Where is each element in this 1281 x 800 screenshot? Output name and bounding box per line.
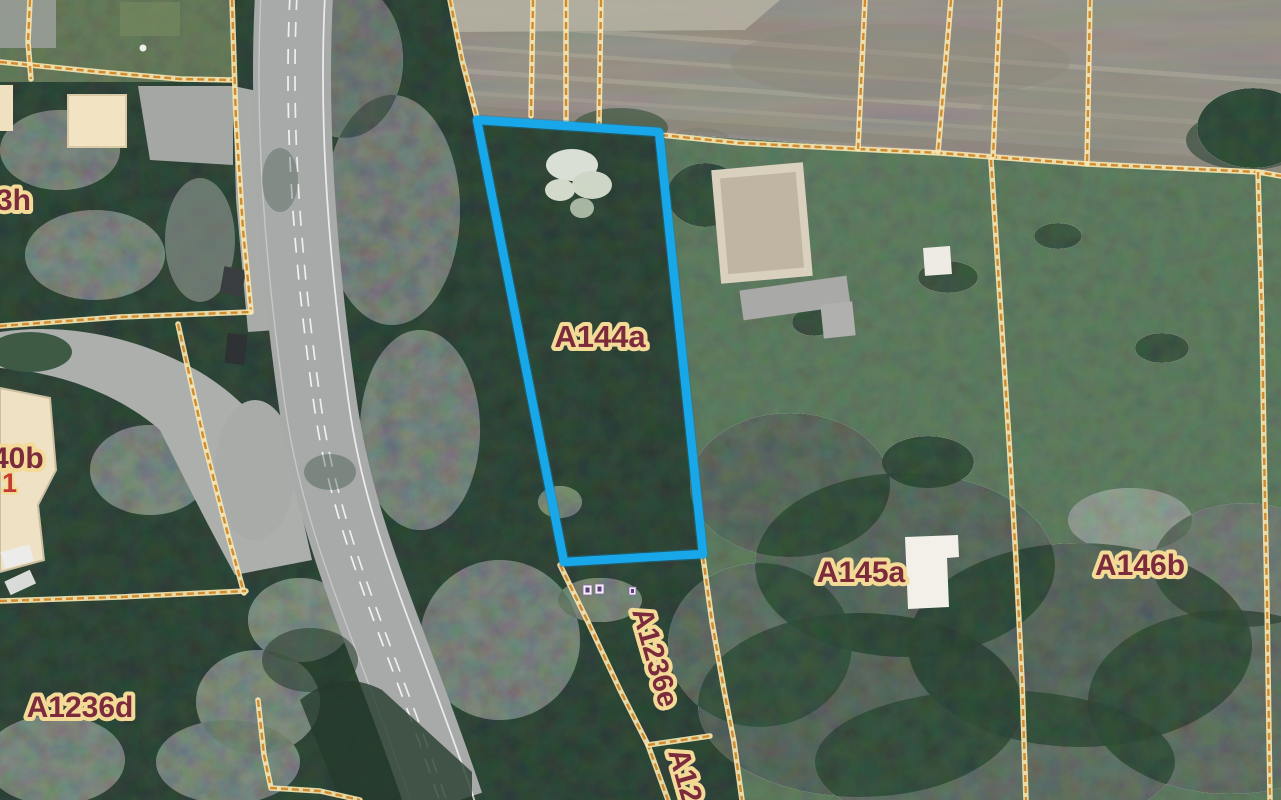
map-canvas[interactable]: A144aA145aA146bA1236dA1236eA123h40b1 — [0, 0, 1281, 800]
parcel-label-a144a: A144a — [554, 319, 646, 354]
parcel-label-a145a: A145a — [817, 556, 906, 589]
parcel-label-a146b: A146b — [1095, 549, 1185, 582]
parcel-label-3h: 3h — [0, 184, 31, 217]
lawn-patch — [120, 2, 180, 36]
house-number-1: 1 — [2, 468, 17, 498]
car — [224, 333, 247, 365]
boundary-field-3 — [599, 0, 601, 125]
tennis-court — [711, 162, 813, 284]
map-viewport[interactable]: A144aA145aA146bA1236dA1236eA123h40b1 — [0, 0, 1281, 800]
shed — [923, 246, 952, 276]
parcel-label-a1236d: A1236d — [27, 691, 134, 724]
car — [220, 266, 246, 296]
building-edge — [0, 85, 13, 131]
small-structure — [140, 45, 147, 52]
building — [820, 301, 855, 338]
building — [68, 95, 126, 147]
